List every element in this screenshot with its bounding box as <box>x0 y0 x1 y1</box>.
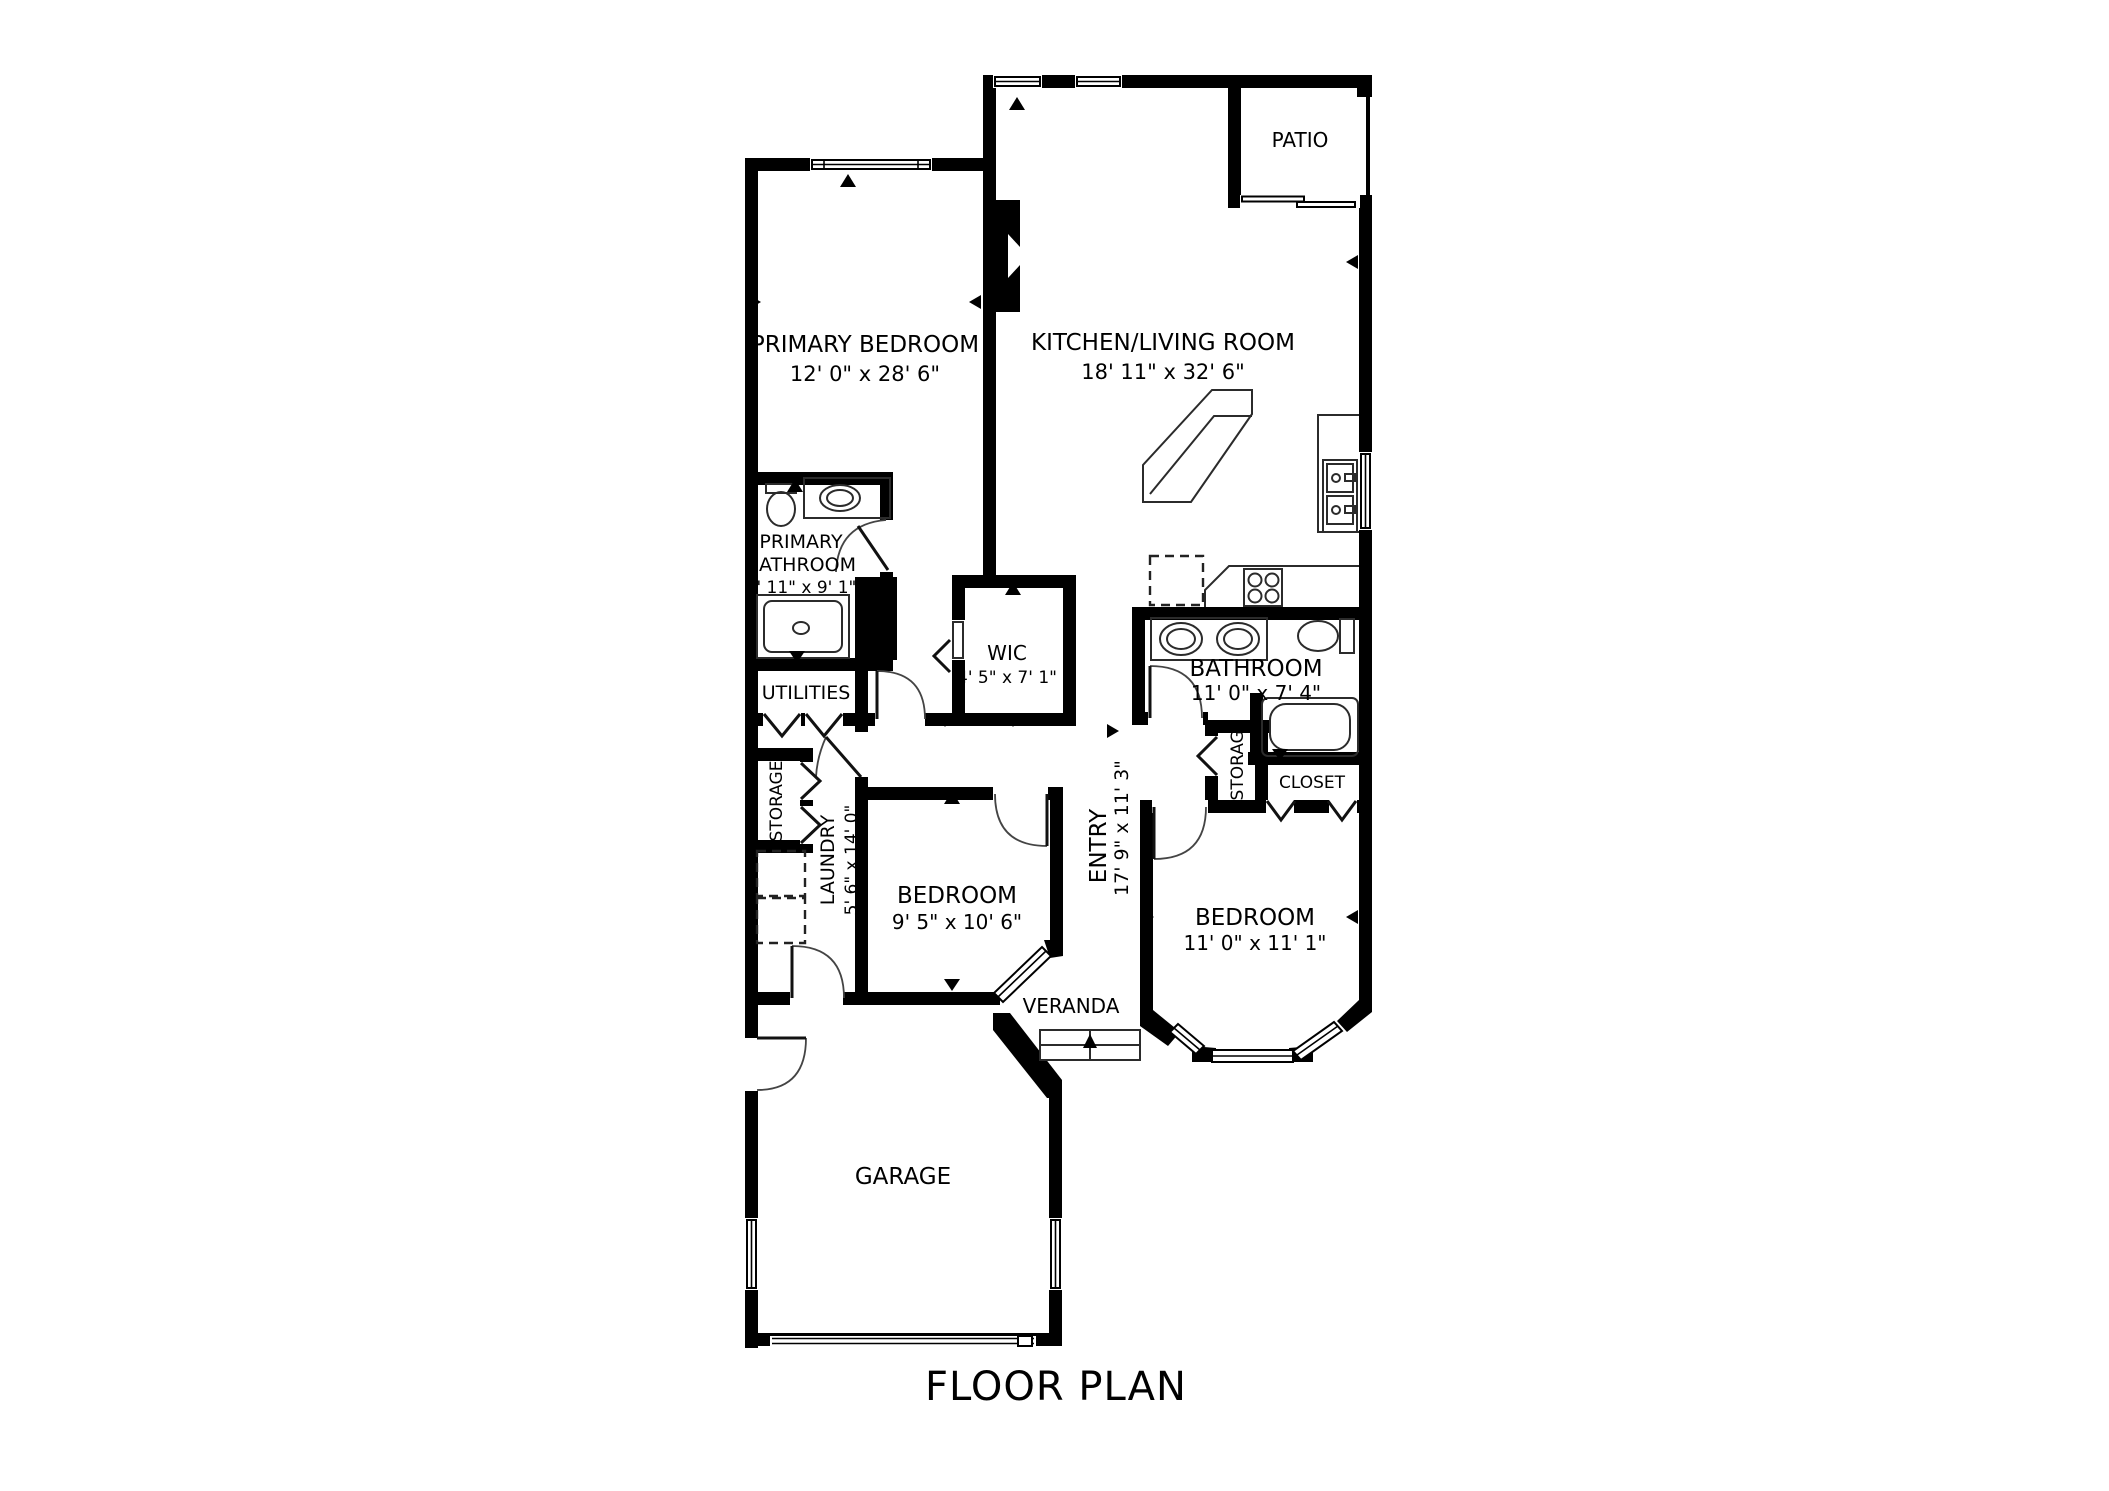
garage-door-icon <box>770 1336 1036 1346</box>
door-bedroom-right <box>1154 807 1206 859</box>
door-garage-entry <box>757 1038 806 1090</box>
label-bedroom-right: BEDROOM <box>1195 905 1315 931</box>
label-bathroom: BATHROOM <box>1189 656 1322 682</box>
label-primary-bathroom-2: BATHROOM <box>746 554 856 576</box>
toilet-icon <box>1298 621 1338 651</box>
label-bedroom-middle: BEDROOM <box>897 883 1017 909</box>
label-primary-bedroom-dims: 12' 0" x 28' 6" <box>790 362 940 386</box>
label-kitchen-living-dims: 18' 11" x 32' 6" <box>1081 360 1245 384</box>
floor-plan-page: PATIO PRIMARY BEDROOM 12' 0" x 28' 6" KI… <box>0 0 2109 1491</box>
label-bedroom-middle-dims: 9' 5" x 10' 6" <box>892 910 1022 934</box>
dryer-dashed-icon <box>757 898 805 943</box>
label-wic: WIC <box>987 641 1027 665</box>
label-storage-left: STORAGE <box>767 761 787 842</box>
kitchen-island-icon <box>1143 390 1252 502</box>
label-veranda: VERANDA <box>1023 994 1120 1018</box>
label-patio: PATIO <box>1272 128 1329 152</box>
plan-title: FLOOR PLAN <box>925 1364 1187 1410</box>
label-primary-bathroom-dims: 6' 11" x 9' 1" <box>746 578 857 598</box>
label-closet: CLOSET <box>1279 773 1346 793</box>
door-bedroom-middle <box>995 794 1047 846</box>
label-laundry-dims: 5' 6" x 14' 0" <box>842 805 862 916</box>
label-laundry: LAUNDRY <box>817 814 839 905</box>
door-laundry <box>816 737 826 777</box>
label-storage-right: STORAGE <box>1228 720 1248 801</box>
shower-icon <box>757 595 849 658</box>
sink-counter-icon <box>1151 618 1267 660</box>
door-wic <box>953 622 963 658</box>
floor-plan-drawing: PATIO PRIMARY BEDROOM 12' 0" x 28' 6" KI… <box>0 0 2109 1491</box>
label-primary-bathroom-1: PRIMARY <box>759 531 843 553</box>
washer-dashed-icon <box>757 851 805 896</box>
label-wic-dims: 4' 5" x 7' 1" <box>957 668 1057 688</box>
label-bedroom-right-dims: 11' 0" x 11' 1" <box>1183 931 1326 955</box>
door-laundry-garage <box>792 946 844 998</box>
label-garage: GARAGE <box>855 1164 951 1190</box>
label-kitchen-living: KITCHEN/LIVING ROOM <box>1031 330 1295 356</box>
fridge-dashed-icon <box>1150 556 1203 605</box>
label-utilities: UTILITIES <box>762 682 851 704</box>
door-hallway <box>877 671 925 719</box>
steps-icon <box>1040 1030 1140 1060</box>
label-entry: ENTRY <box>1086 808 1112 883</box>
label-entry-dims: 17' 9" x 11' 3" <box>1111 760 1133 896</box>
walls <box>745 75 1372 1348</box>
label-primary-bedroom: PRIMARY BEDROOM <box>751 332 979 358</box>
label-bathroom-dims: 11' 0" x 7' 4" <box>1191 681 1321 705</box>
